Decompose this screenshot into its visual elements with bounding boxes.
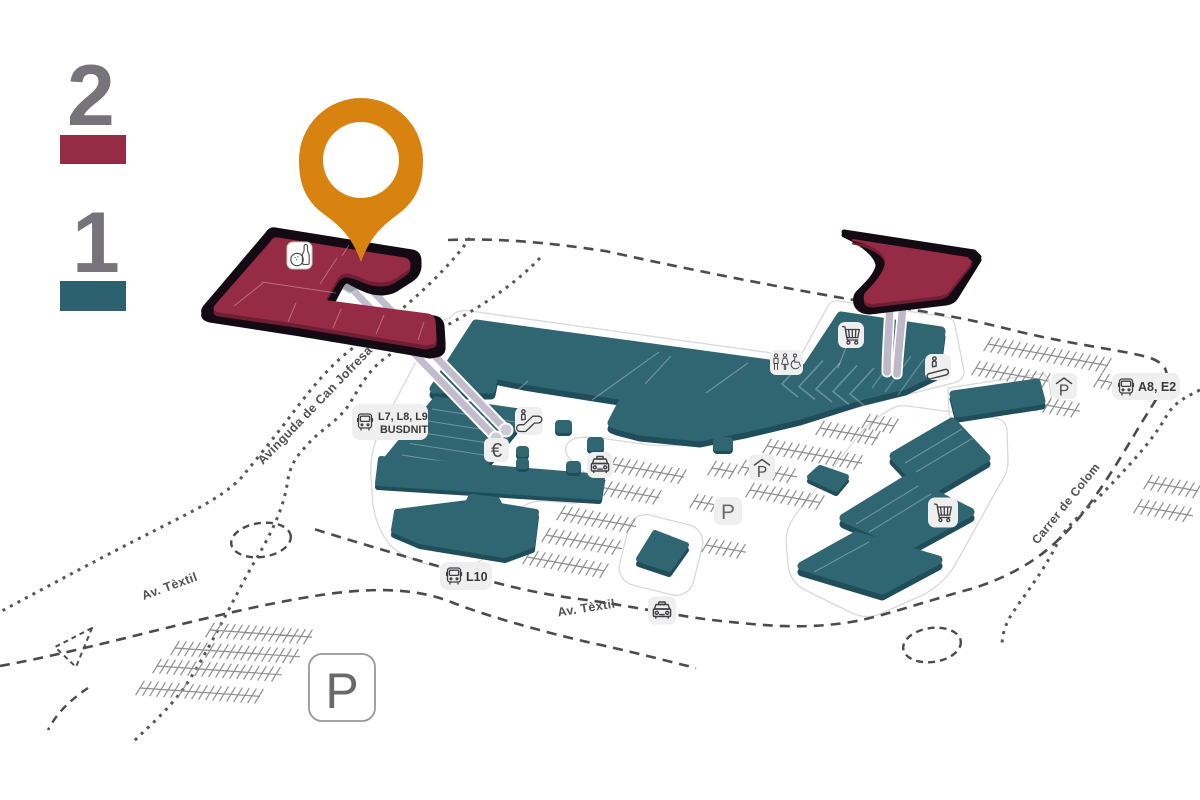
svg-text:L10: L10 [466,570,488,584]
svg-text:L7, L8, L9: L7, L8, L9 [378,411,428,423]
svg-text:A8, E2: A8, E2 [1138,380,1176,394]
svg-text:BUSDNIT: BUSDNIT [380,424,428,436]
svg-text:P: P [757,464,767,481]
svg-text:P: P [1059,383,1069,400]
svg-text:€: € [491,440,502,462]
svg-text:P: P [721,501,735,524]
svg-text:1: 1 [72,195,120,291]
svg-text:2: 2 [67,48,115,144]
svg-text:P: P [325,663,358,719]
